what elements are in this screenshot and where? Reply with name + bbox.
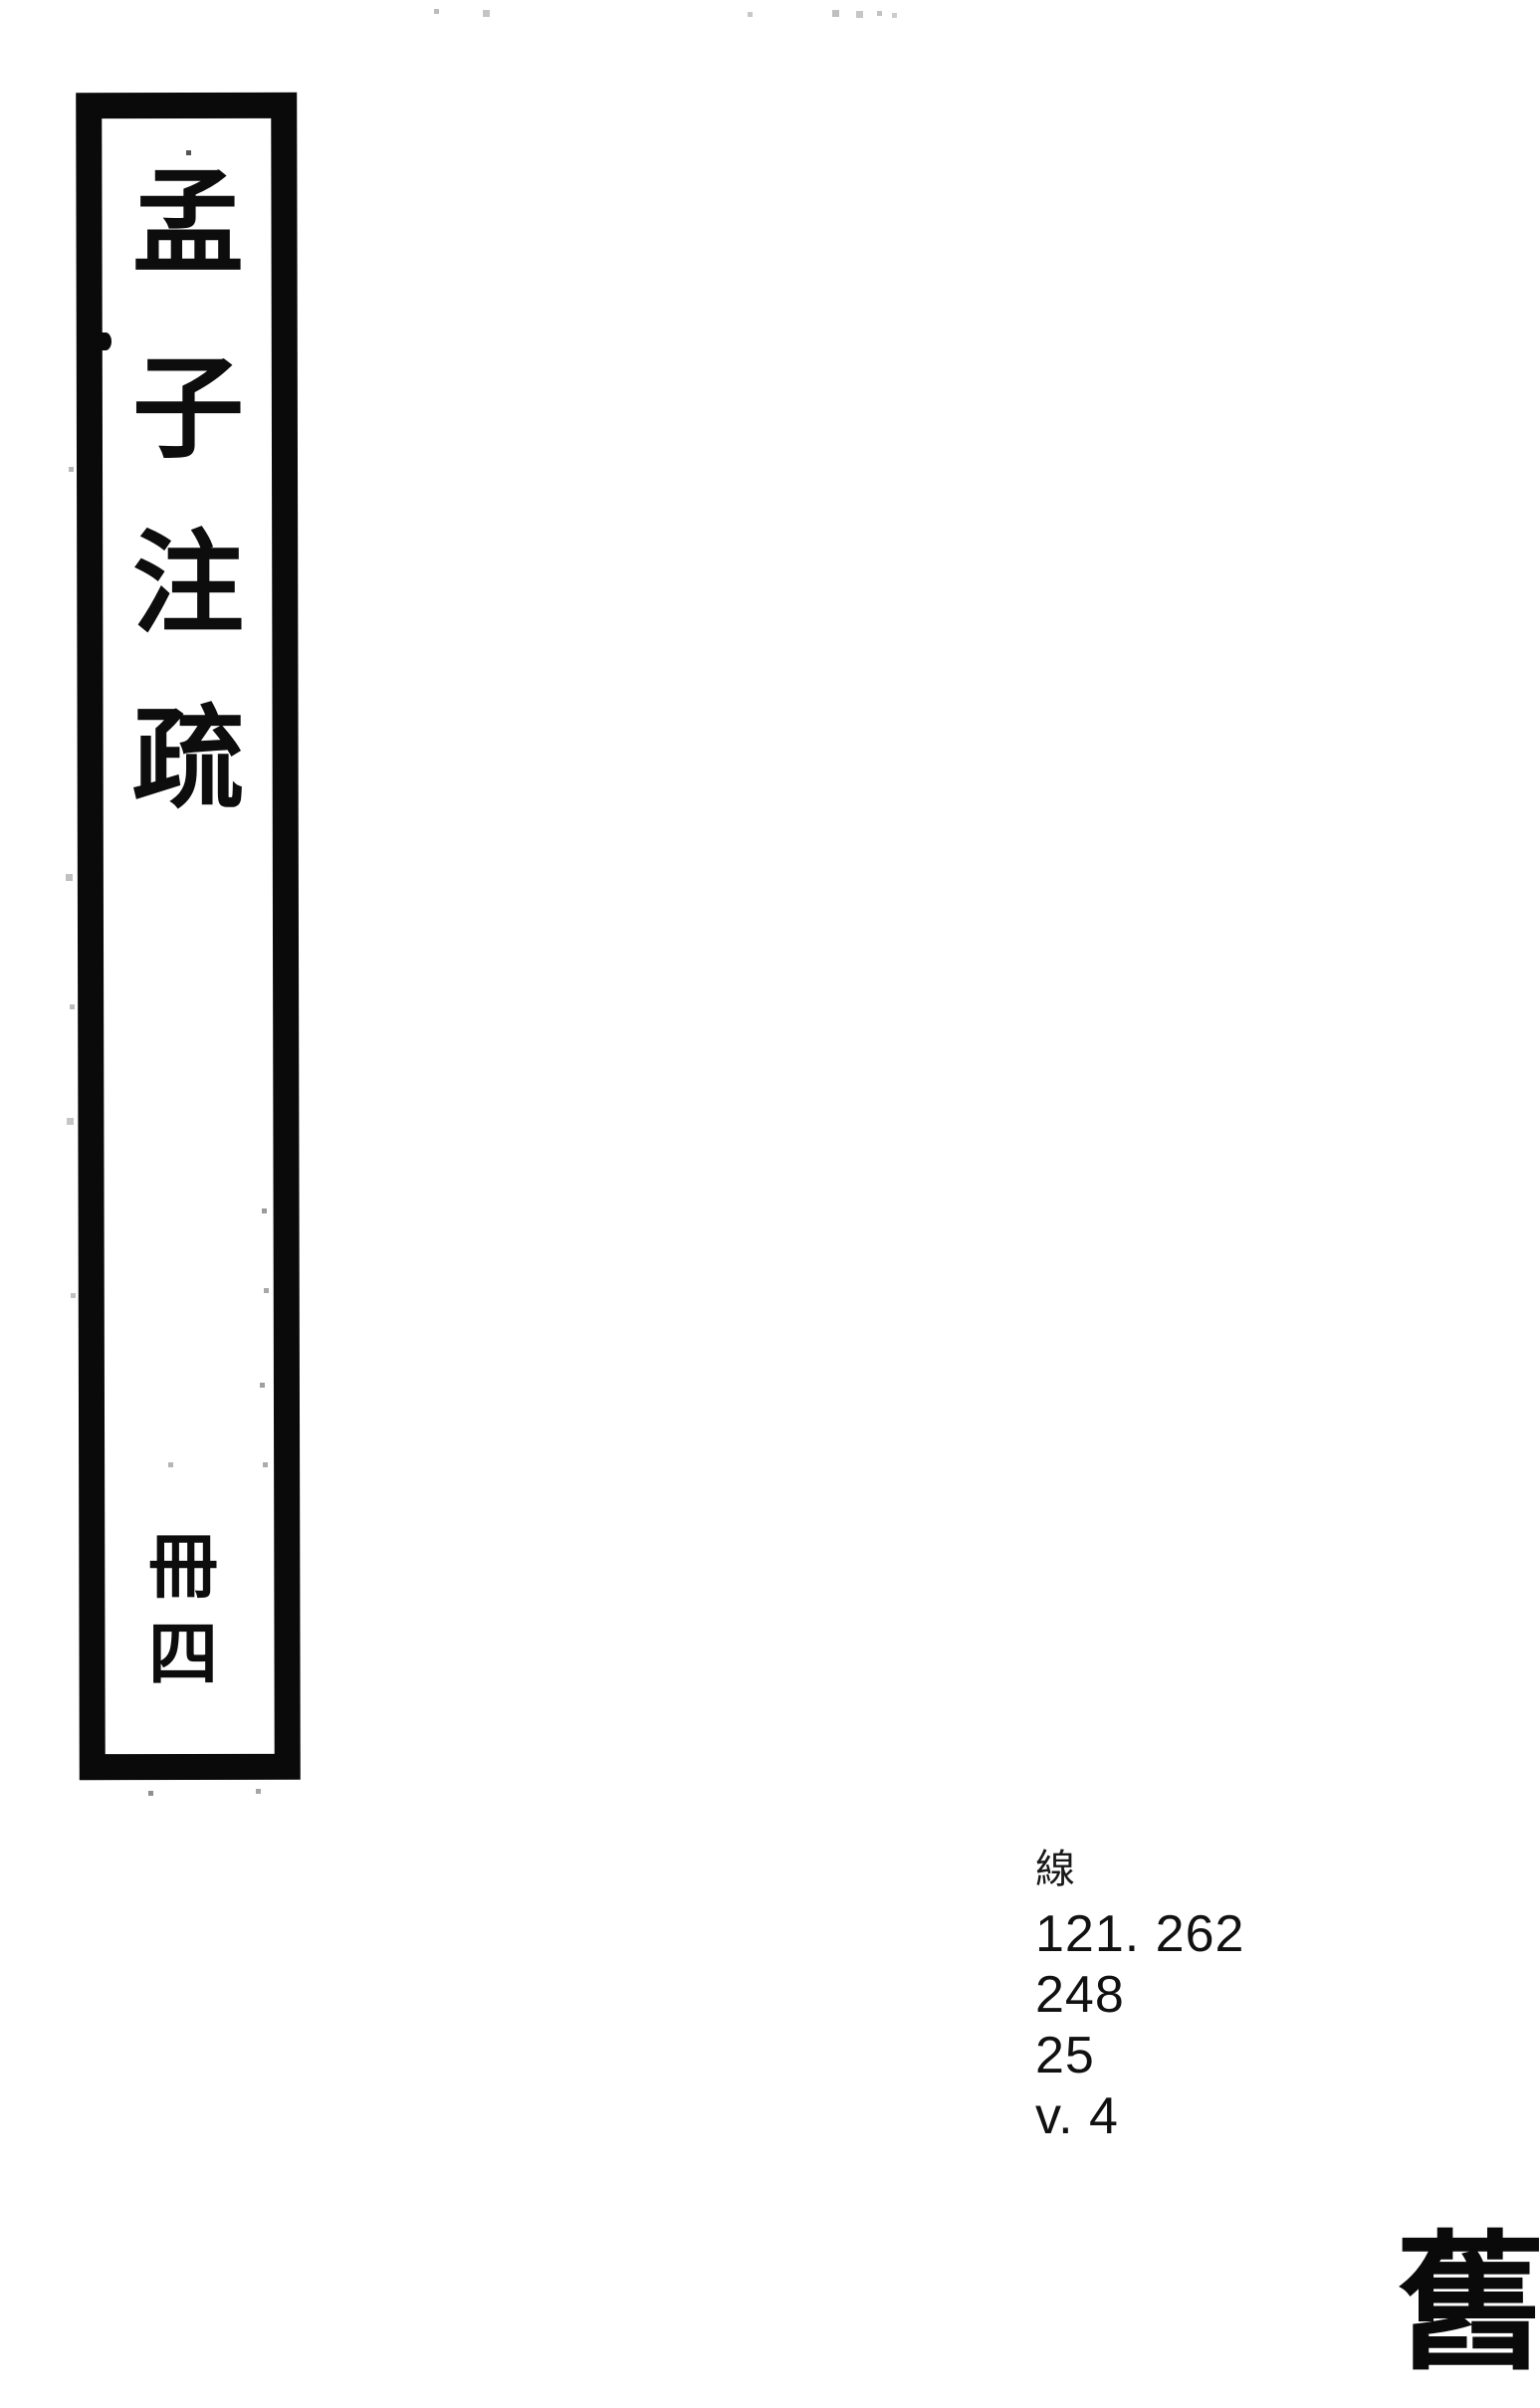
scanned-page: 孟 子 注 疏 冊 四 線 121. 262 248 25 v. 4 舊	[0, 0, 1540, 2408]
call-number-volume: v. 4	[1035, 2087, 1294, 2148]
scan-noise-specks	[0, 0, 3, 3]
title-char-shu: 疏	[104, 701, 273, 818]
call-number-cutter1: 248	[1035, 1966, 1294, 2027]
title-char-meng: 孟	[104, 165, 273, 283]
old-collection-stamp-char: 舊	[1396, 2224, 1540, 2383]
title-char-zhu: 注	[104, 526, 273, 643]
title-char-zi: 子	[104, 350, 273, 468]
call-number-class: 121. 262	[1035, 1905, 1294, 1966]
volume-char-ce: 冊	[100, 1531, 267, 1603]
call-number-cutter2: 25	[1035, 2027, 1294, 2087]
volume-char-si: 四	[100, 1619, 267, 1690]
call-number-lines: 121. 262 248 25 v. 4	[1035, 1905, 1294, 2148]
border-ink-blemish	[100, 332, 111, 350]
call-number-script-char: 線	[1035, 1848, 1294, 1891]
call-number-block: 線 121. 262 248 25 v. 4	[1035, 1848, 1294, 2148]
